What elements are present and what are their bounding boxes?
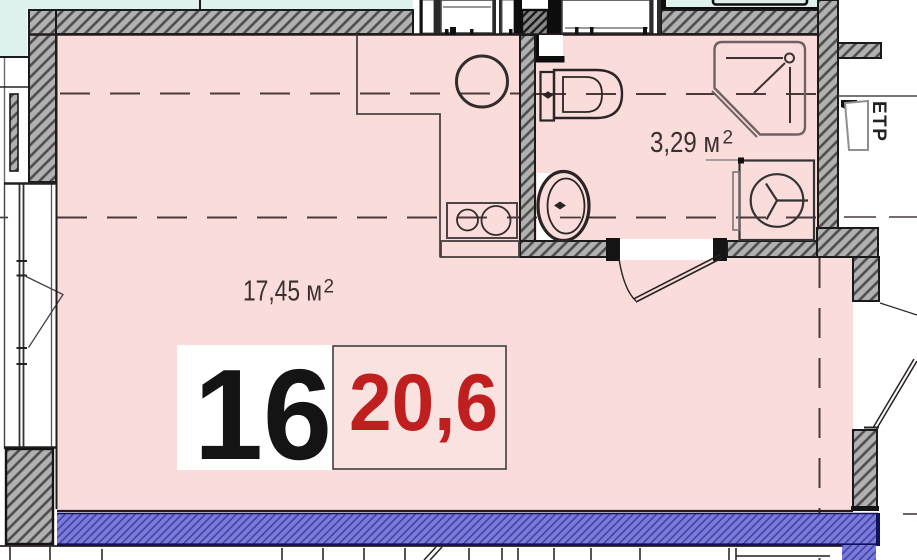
svg-text:17,45 м: 17,45 м xyxy=(243,276,322,308)
svg-text:20,6: 20,6 xyxy=(349,358,498,448)
svg-text:ЕТР: ЕТР xyxy=(868,101,889,142)
svg-text:16: 16 xyxy=(194,343,332,487)
svg-text:2: 2 xyxy=(723,128,734,149)
svg-text:3,29 м: 3,29 м xyxy=(650,127,720,159)
svg-text:2: 2 xyxy=(324,277,335,298)
